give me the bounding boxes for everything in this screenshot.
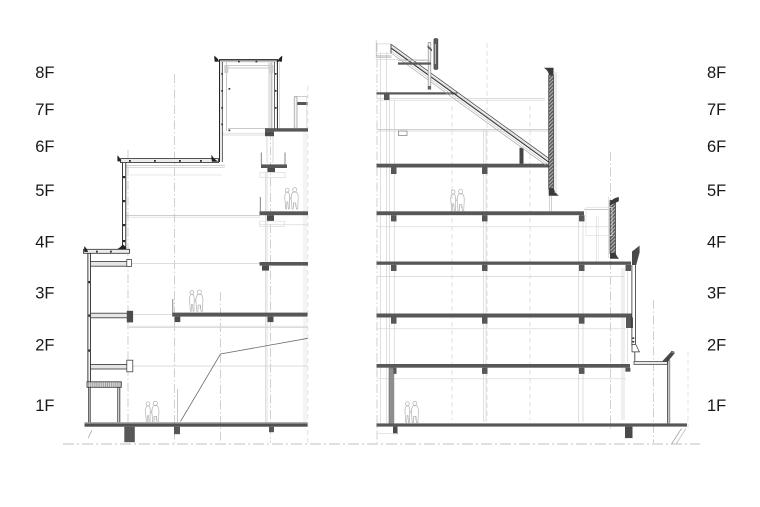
svg-text:5F: 5F [35, 182, 54, 200]
svg-text:1F: 1F [707, 397, 726, 415]
svg-text:2F: 2F [707, 336, 726, 354]
svg-text:2F: 2F [35, 336, 54, 354]
svg-text:4F: 4F [707, 233, 726, 251]
svg-text:8F: 8F [35, 64, 54, 82]
svg-text:3F: 3F [35, 284, 54, 302]
svg-text:8F: 8F [707, 64, 726, 82]
svg-text:7F: 7F [35, 101, 54, 119]
svg-text:4F: 4F [35, 233, 54, 251]
svg-text:7F: 7F [707, 101, 726, 119]
svg-text:5F: 5F [707, 182, 726, 200]
svg-text:6F: 6F [707, 138, 726, 156]
svg-text:3F: 3F [707, 284, 726, 302]
svg-text:6F: 6F [35, 138, 54, 156]
svg-text:1F: 1F [35, 397, 54, 415]
